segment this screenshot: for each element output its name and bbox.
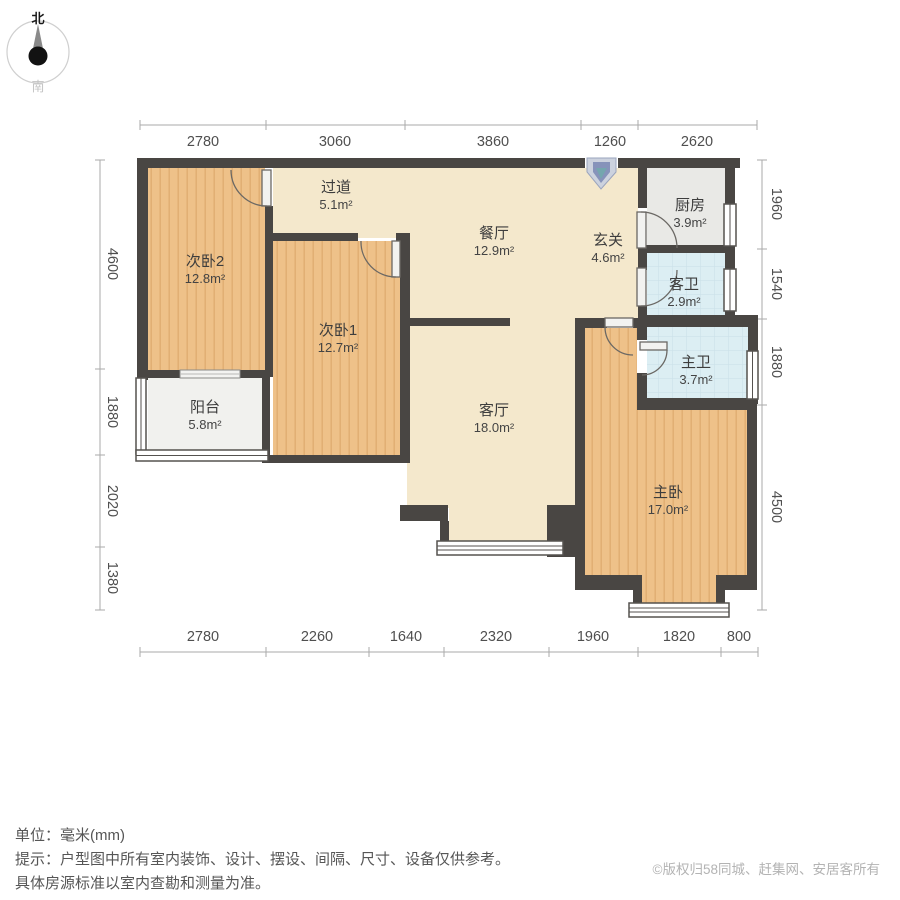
guest-bath-window <box>724 269 736 311</box>
floor-living <box>407 318 577 508</box>
dim-left-1: 4600 <box>104 232 120 296</box>
dim-top-4: 1260 <box>578 134 642 150</box>
compass-south-label: 南 <box>26 76 50 95</box>
compass-icon <box>7 21 69 83</box>
floor-kitchen <box>647 168 725 245</box>
dim-top-3: 3860 <box>461 134 525 150</box>
master-bath-window <box>747 351 758 399</box>
tip-note-line2: 具体房源标准以室内查勘和测量为准。 <box>15 872 270 893</box>
dim-right-4: 4500 <box>768 475 784 539</box>
dim-bottom-7: 800 <box>707 629 771 645</box>
dim-bottom-5: 1960 <box>561 629 625 645</box>
floor-guest-bath <box>647 253 725 315</box>
dim-right-1: 1960 <box>768 172 784 236</box>
tip-note-line1: 提示：户型图中所有室内装饰、设计、摆设、间隔、尺寸、设备仅供参考。 <box>15 848 510 869</box>
compass-north-label: 北 <box>26 8 50 27</box>
floorplan-drawing <box>0 0 900 900</box>
floor-balcony <box>148 377 262 452</box>
balcony-slider <box>180 370 240 378</box>
kitchen-window <box>724 204 736 246</box>
dim-top-2: 3060 <box>303 134 367 150</box>
floor-hallway <box>273 168 410 238</box>
floor-living-bay <box>449 508 547 544</box>
dim-top-1: 2780 <box>171 134 235 150</box>
floor-master-bedroom <box>585 410 747 575</box>
dim-bottom-1: 2780 <box>171 629 235 645</box>
floorplan-screenshot: 北 南 次卧2 12.8m² 过道 5.1m² 餐厅 12.9m² 玄关 4.6… <box>0 0 900 900</box>
floor-nook <box>585 328 637 410</box>
dim-bottom-4: 2320 <box>464 629 528 645</box>
copyright-note: ©版权归58同城、赶集网、安居客所有 <box>653 858 880 878</box>
master-bay-window <box>629 603 729 617</box>
dim-bottom-2: 2260 <box>285 629 349 645</box>
unit-note: 单位：毫米(mm) <box>15 824 125 845</box>
dim-left-4: 1380 <box>104 546 120 610</box>
dim-left-2: 1880 <box>104 380 120 444</box>
dim-right-3: 1880 <box>768 330 784 394</box>
balcony-left-window <box>136 378 146 454</box>
dim-top-5: 2620 <box>665 134 729 150</box>
floor-master-bath <box>647 327 748 398</box>
dim-left-3: 2020 <box>104 469 120 533</box>
floor-dining-entry <box>400 168 638 325</box>
balcony-bottom-window <box>136 450 268 461</box>
dim-bottom-3: 1640 <box>374 629 438 645</box>
living-bay-window <box>437 541 563 555</box>
floor-bedroom2 <box>148 168 265 370</box>
dim-bottom-6: 1820 <box>647 629 711 645</box>
dim-right-2: 1540 <box>768 252 784 316</box>
